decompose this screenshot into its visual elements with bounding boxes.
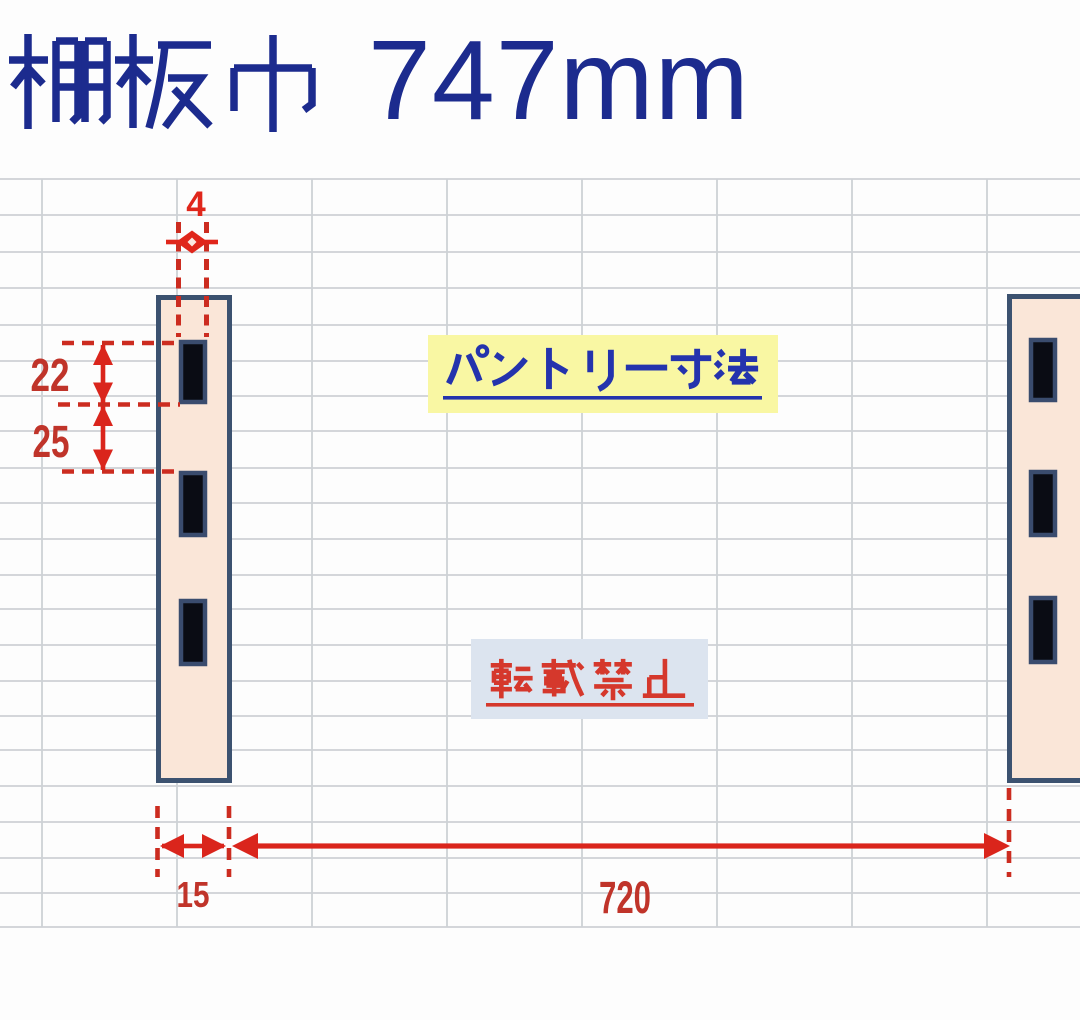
svg-text:747mm: 747mm [368, 17, 750, 143]
svg-text:25: 25 [33, 416, 70, 467]
svg-text:720: 720 [599, 872, 651, 923]
svg-text:4: 4 [186, 185, 206, 224]
svg-text:22: 22 [31, 349, 70, 401]
svg-text:15: 15 [177, 874, 210, 915]
